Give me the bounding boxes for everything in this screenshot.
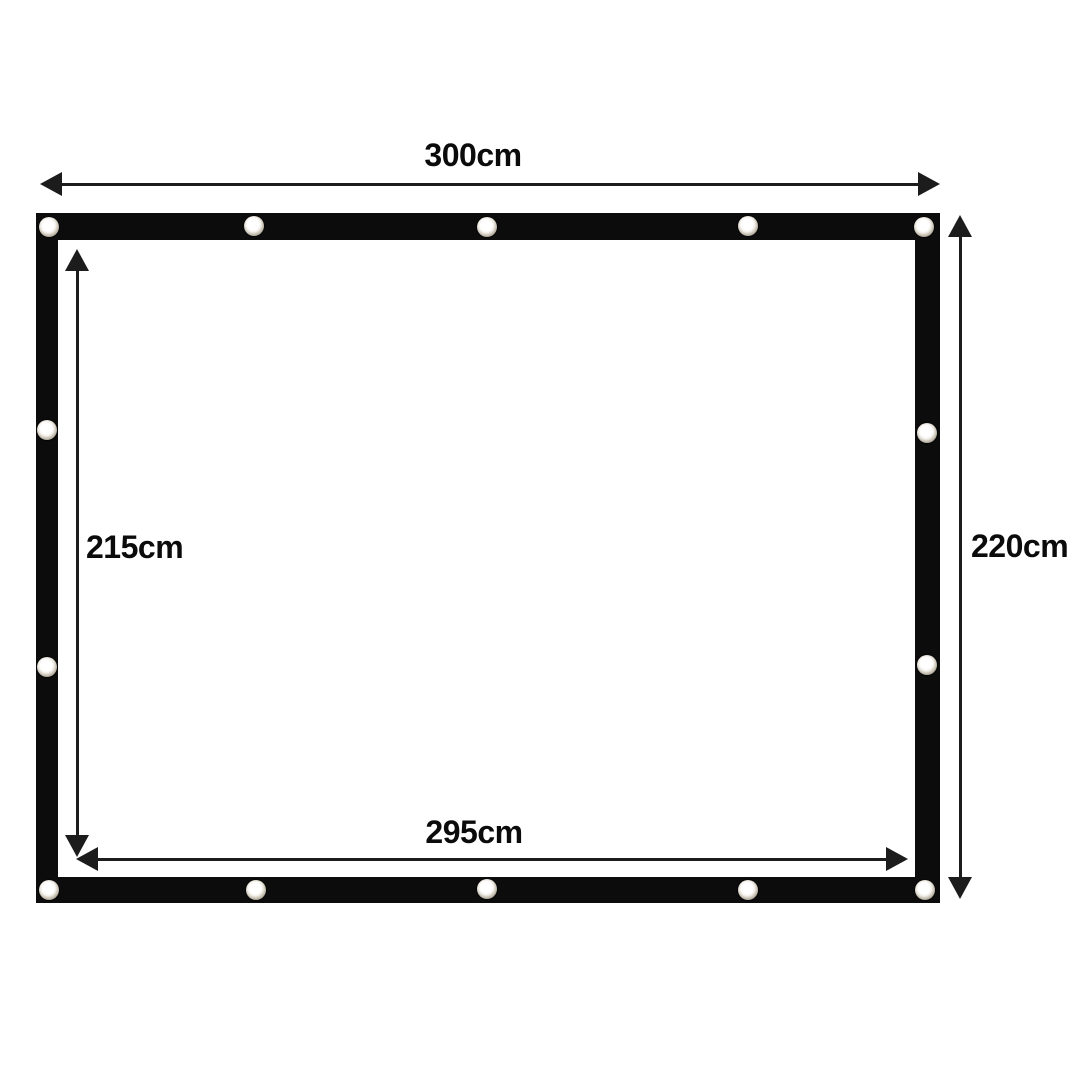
grommet (39, 217, 59, 237)
grommet (477, 879, 497, 899)
dimension-line (76, 267, 79, 839)
dimension-arrow-inner-width (76, 847, 908, 871)
grommet (37, 657, 57, 677)
grommet (917, 423, 937, 443)
grommet (738, 216, 758, 236)
arrowhead-right-icon (886, 847, 908, 871)
dimension-label-outer-height: 220cm (971, 530, 1068, 562)
dimension-label-outer-width: 300cm (424, 139, 521, 171)
grommet (915, 880, 935, 900)
grommet (244, 216, 264, 236)
arrowhead-right-icon (918, 172, 940, 196)
dimension-arrow-outer-width (40, 172, 940, 196)
grommet (477, 217, 497, 237)
grommet (39, 880, 59, 900)
grommet (917, 655, 937, 675)
arrowhead-down-icon (948, 877, 972, 899)
grommet (738, 880, 758, 900)
dimension-label-inner-height: 215cm (86, 531, 183, 563)
dimension-label-inner-width: 295cm (425, 816, 522, 848)
grommet (246, 880, 266, 900)
dimension-line (959, 233, 962, 881)
diagram-canvas: 300cm 220cm 215cm 295cm (0, 0, 1080, 1080)
grommet (37, 420, 57, 440)
dimension-line (94, 858, 890, 861)
grommet (914, 217, 934, 237)
dimension-line (58, 183, 922, 186)
dimension-arrow-outer-height (948, 215, 972, 899)
